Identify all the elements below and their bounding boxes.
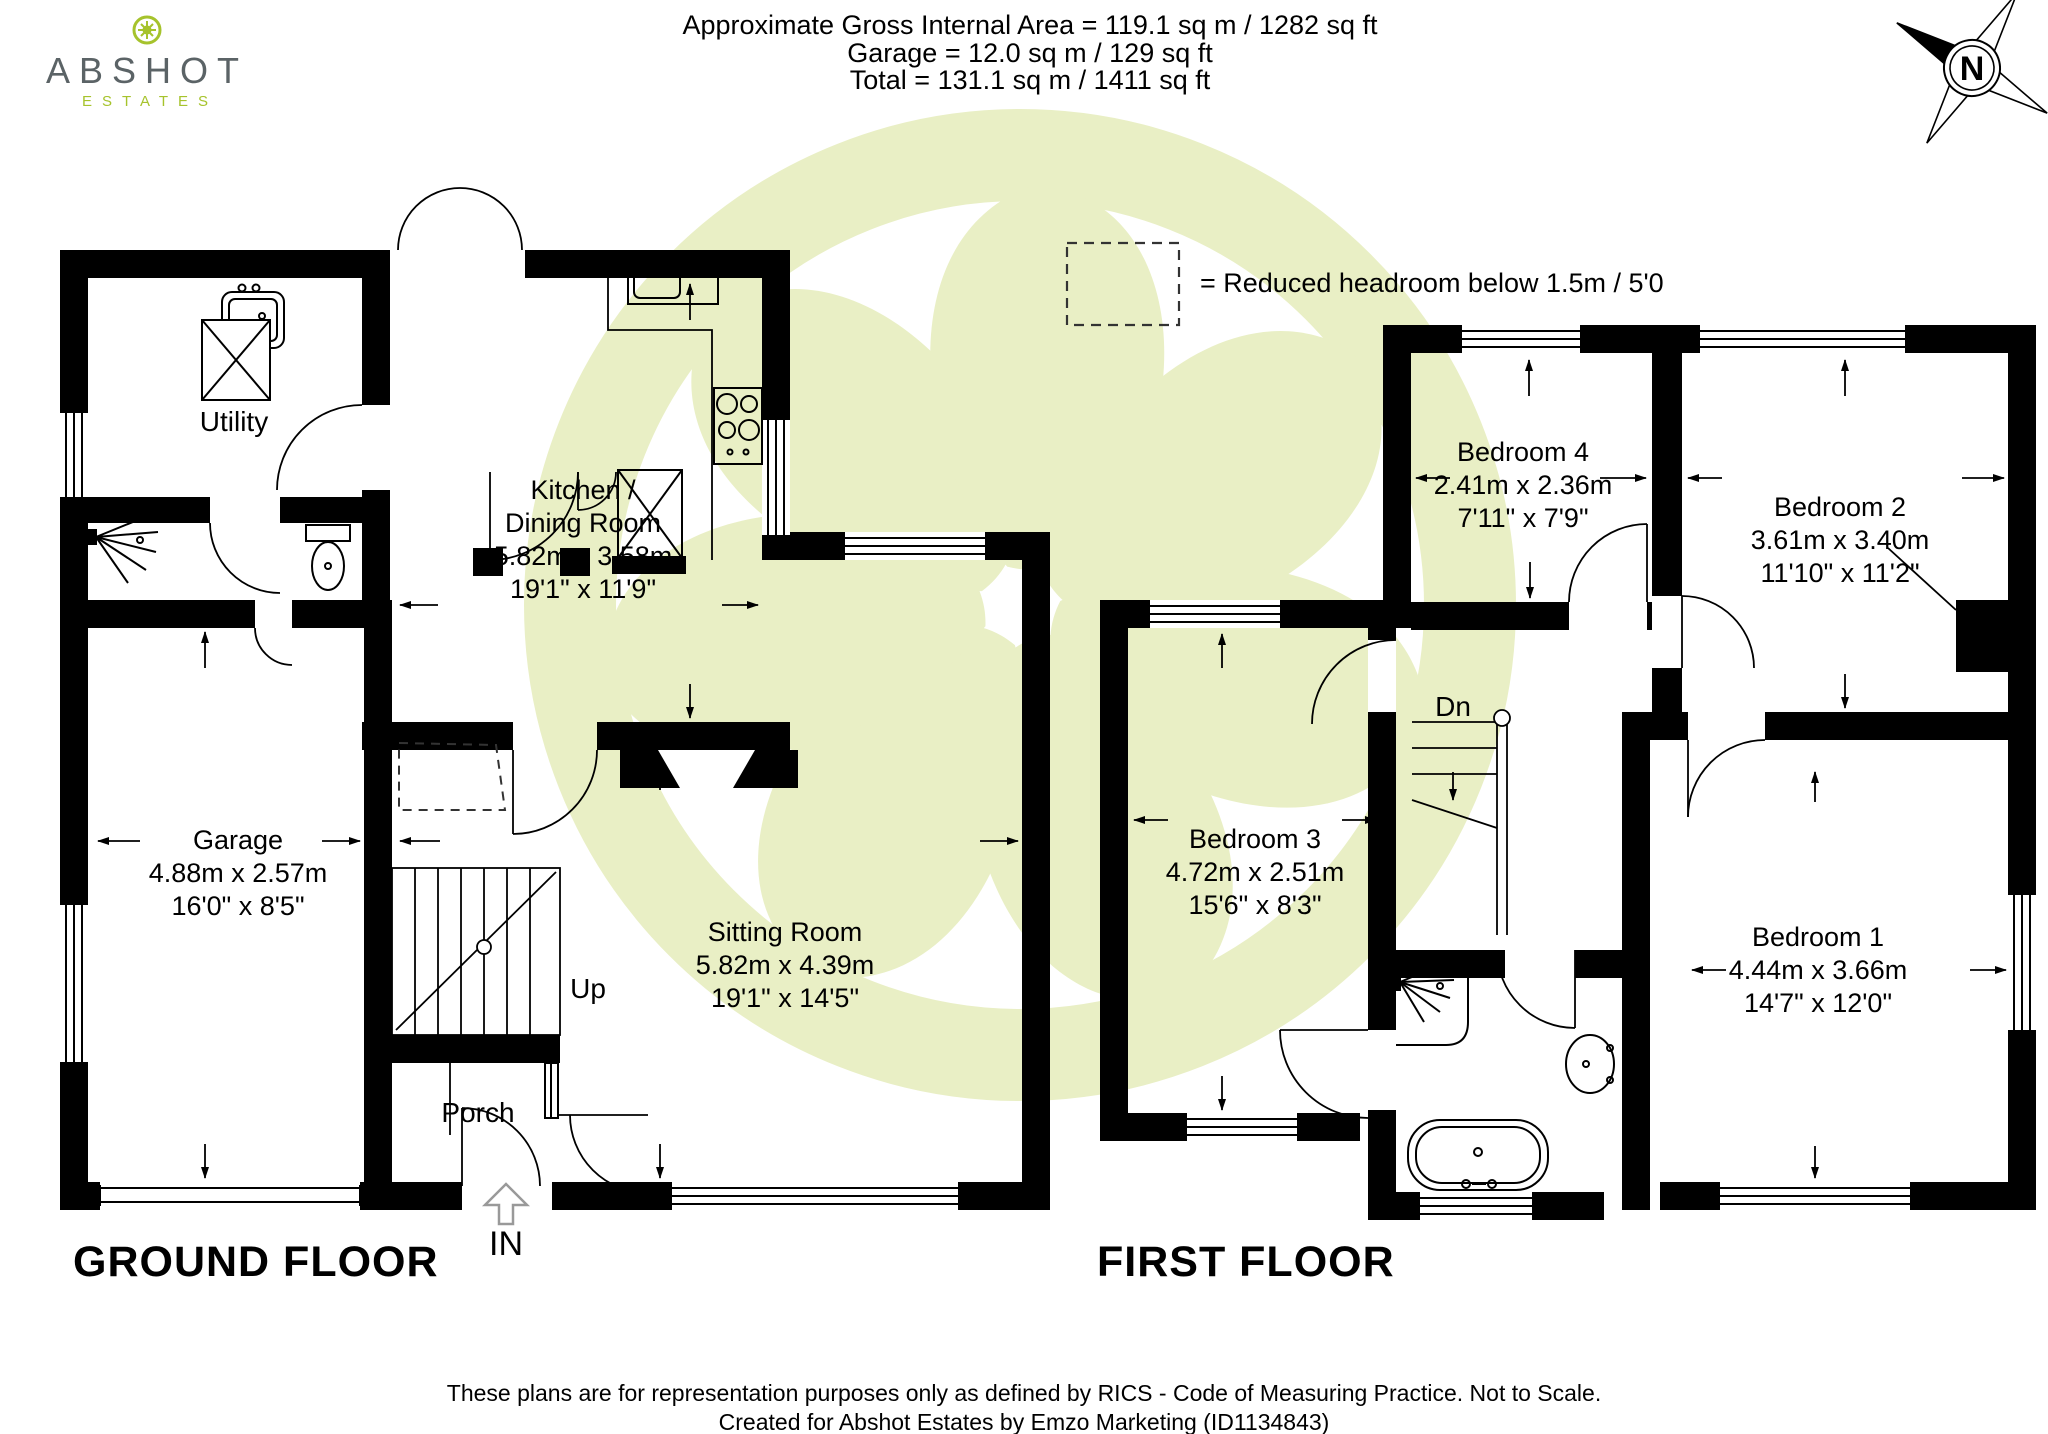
- room-name: Bedroom 4: [1434, 436, 1613, 469]
- room-size-imperial: 16'0" x 8'5": [149, 890, 328, 923]
- disclaimer-line2: Created for Abshot Estates by Emzo Marke…: [719, 1409, 1330, 1434]
- room-name: Porch: [441, 1096, 514, 1129]
- reduced-headroom-area: [399, 743, 505, 810]
- room-size-metric: 2.41m x 2.36m: [1434, 469, 1613, 502]
- room-size-metric: 3.61m x 3.40m: [1751, 524, 1930, 557]
- room-size-imperial: 15'6" x 8'3": [1166, 889, 1345, 922]
- room-label-sitting-room: Sitting Room 5.82m x 4.39m 19'1" x 14'5": [696, 916, 875, 1015]
- room-label-bedroom1: Bedroom 1 4.44m x 3.66m 14'7" x 12'0": [1729, 921, 1908, 1020]
- room-label-utility: Utility: [200, 405, 268, 438]
- room-label-garage: Garage 4.88m x 2.57m 16'0" x 8'5": [149, 824, 328, 923]
- washing-machine-icon: [202, 320, 270, 400]
- room-name: Bedroom 2: [1751, 491, 1930, 524]
- floorplan-page: ABSHOT ESTATES Approximate Gross Interna…: [0, 0, 2048, 1434]
- room-label-bedroom2: Bedroom 2 3.61m x 3.40m 11'10" x 11'2": [1751, 491, 1930, 590]
- ground-floor-title: GROUND FLOOR: [73, 1238, 439, 1287]
- floorplan-linework: [0, 0, 2048, 1434]
- area-summary-line1: Approximate Gross Internal Area = 119.1 …: [682, 10, 1377, 41]
- room-name: Kitchen /: [494, 474, 673, 507]
- room-name: Garage: [149, 824, 328, 857]
- compass-north-label: N: [1960, 50, 1985, 89]
- reduced-headroom-legend-label: = Reduced headroom below 1.5m / 5'0: [1200, 268, 1664, 299]
- room-size-metric: 5.82m x 3.58m: [494, 540, 673, 573]
- room-size-metric: 4.44m x 3.66m: [1729, 954, 1908, 987]
- stairs-up-label: Up: [570, 972, 606, 1005]
- room-name: Sitting Room: [696, 916, 875, 949]
- brand-name: ABSHOT: [46, 50, 248, 92]
- area-summary-line3: Total = 131.1 sq m / 1411 sq ft: [850, 65, 1210, 96]
- room-size-imperial: 14'7" x 12'0": [1729, 987, 1908, 1020]
- toilet-icon: [306, 525, 350, 590]
- brand-tagline: ESTATES: [82, 93, 218, 110]
- shower-icon: [88, 515, 158, 583]
- ground-stairs: [392, 868, 560, 1035]
- entrance-in-label: IN: [489, 1228, 523, 1261]
- room-size-metric: 4.72m x 2.51m: [1166, 856, 1345, 889]
- room-name: Bedroom 3: [1166, 823, 1345, 856]
- first-floor-title: FIRST FLOOR: [1097, 1238, 1395, 1287]
- basin-icon: [1566, 1035, 1614, 1093]
- room-label-porch: Porch: [441, 1096, 514, 1129]
- room-label-bedroom3: Bedroom 3 4.72m x 2.51m 15'6" x 8'3": [1166, 823, 1345, 922]
- brand-flower-icon: [134, 17, 160, 43]
- disclaimer-line1: These plans are for representation purpo…: [447, 1380, 1601, 1407]
- room-size-imperial: 11'10" x 11'2": [1751, 557, 1930, 590]
- entrance-text: IN: [489, 1228, 523, 1261]
- room-name2: Dining Room: [494, 507, 673, 540]
- room-label-bedroom4: Bedroom 4 2.41m x 2.36m 7'11" x 7'9": [1434, 436, 1613, 535]
- stairs-dn-label: Dn: [1435, 690, 1471, 723]
- stairs-direction: Dn: [1435, 690, 1471, 723]
- room-size-imperial: 19'1" x 11'9": [494, 573, 673, 606]
- room-name: Bedroom 1: [1729, 921, 1908, 954]
- room-label-kitchen: Kitchen / Dining Room 5.82m x 3.58m 19'1…: [494, 474, 673, 606]
- stairs-direction: Up: [570, 972, 606, 1005]
- room-name: Utility: [200, 405, 268, 438]
- room-size-metric: 5.82m x 4.39m: [696, 949, 875, 982]
- room-size-imperial: 19'1" x 14'5": [696, 982, 875, 1015]
- bath-icon: [1408, 1120, 1548, 1190]
- room-size-metric: 4.88m x 2.57m: [149, 857, 328, 890]
- room-size-imperial: 7'11" x 7'9": [1434, 502, 1613, 535]
